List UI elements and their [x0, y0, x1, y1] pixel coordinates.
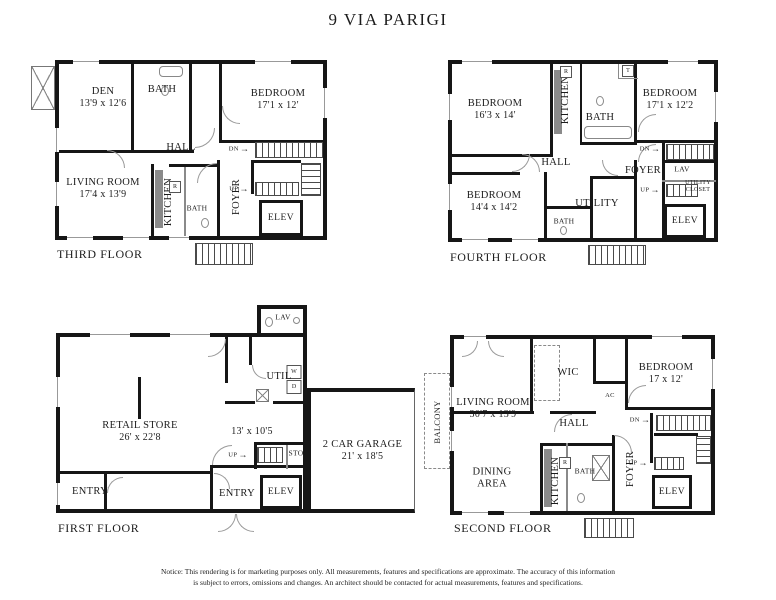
elevator-label: ELEV [268, 213, 294, 223]
stair-return-run [301, 163, 321, 196]
arrow-right-icon: → [651, 145, 660, 154]
room-label-hall: HALL [559, 418, 588, 430]
room-label-sto: STO [289, 450, 304, 459]
elevator: ELEV [259, 200, 303, 236]
arrow-right-icon: → [238, 451, 247, 460]
window [450, 387, 454, 407]
notice-line-1: Notice: This rendering is for marketing … [0, 567, 776, 578]
arrow-right-icon: → [638, 459, 647, 468]
floor-name-fourth: FOURTH FLOOR [450, 250, 547, 265]
notice-text: Notice: This rendering is for marketing … [0, 567, 776, 588]
window [504, 511, 530, 515]
door-arc [462, 341, 478, 357]
wall [634, 64, 637, 142]
wall [219, 64, 222, 142]
wall [618, 78, 638, 79]
room-label-bath-2: BATH [187, 205, 208, 214]
room-label-foyer: FOYER [625, 165, 661, 177]
wall [580, 64, 582, 142]
wall [189, 64, 192, 152]
fourth-floor-plan: ELEV BEDROOM 16'3 x 14' KITCHEN BATH BED… [448, 60, 718, 242]
window [448, 184, 452, 210]
elevator-label: ELEV [672, 216, 698, 226]
window [123, 236, 149, 240]
room-label-bath-2: BATH [554, 218, 575, 227]
room-label-hall: HALL [541, 157, 570, 169]
wall [273, 401, 303, 404]
room-label-living-room: LIVING ROOM 30'7 x 13'9 [456, 397, 530, 421]
up-annotation: UP→ [229, 185, 249, 194]
elevator: ELEV [664, 204, 706, 238]
stair-run-down [656, 415, 711, 431]
room-label-utility-closet: UTILITY CLOSET [681, 180, 715, 194]
wall [184, 164, 186, 236]
arrow-right-icon: → [240, 145, 249, 154]
up-annotation: UP→ [640, 186, 660, 195]
third-floor-plan: ELEV DEN 13'9 x 12'6 BATH BEDROOM 17'1 x… [55, 60, 327, 240]
window [462, 60, 492, 64]
door-arc [218, 514, 236, 532]
entry-stoop [195, 243, 253, 265]
wic-shelving [534, 345, 560, 401]
room-label-garage: 2 CAR GARAGE 21' x 18'5 [323, 438, 402, 462]
kitchen-counter [155, 170, 163, 228]
wall [251, 160, 301, 163]
elevator-label: ELEV [268, 487, 294, 497]
entry-stoop [584, 518, 634, 538]
room-label-bedroom-left: BEDROOM 16'3 x 14' [468, 98, 523, 122]
door-arc [236, 514, 254, 532]
floor-name-second: SECOND FLOOR [454, 521, 552, 536]
room-label-den: DEN 13'9 x 12'6 [80, 86, 127, 110]
toilet-icon [201, 218, 209, 228]
first-floor-plan: ELEV W D RETAIL STORE 26' x 22'8 13' x 1… [56, 333, 307, 513]
wall [550, 411, 596, 414]
door-arc [214, 473, 230, 489]
first-floor-garage: 2 CAR GARAGE 21' x 18'5 [307, 388, 415, 513]
door-arc [195, 128, 215, 148]
room-label-util: UTIL [266, 371, 291, 383]
notice-line-2: is subject to errors, omissions and chan… [0, 578, 776, 589]
door-arc [602, 160, 618, 176]
window [90, 333, 130, 337]
dn-annotation: DN→ [229, 145, 250, 154]
balcony-outline: BALCONY [424, 373, 450, 469]
door-arc [107, 477, 123, 493]
room-label-bath: BATH [586, 112, 615, 124]
door-arc [628, 385, 646, 403]
elevator-label: ELEV [659, 487, 685, 497]
window [652, 335, 682, 339]
toilet-icon [577, 493, 585, 503]
arrow-right-icon: → [641, 416, 650, 425]
wall [618, 64, 619, 78]
wall [550, 64, 553, 156]
entry-stoop [588, 245, 646, 265]
wall [540, 443, 612, 446]
window [255, 60, 291, 64]
retail-display-wall [138, 377, 141, 419]
stair-run-down [666, 144, 714, 160]
door-arc [488, 341, 504, 357]
wall [662, 160, 716, 163]
window [170, 333, 210, 337]
window [169, 236, 189, 240]
wall [452, 172, 520, 175]
stair-run-down [255, 142, 323, 158]
wall [210, 468, 213, 509]
window [462, 511, 488, 515]
window [73, 60, 99, 64]
room-label-entry-left: ENTRY [72, 486, 108, 498]
dn-annotation: DN→ [640, 145, 661, 154]
wall [634, 140, 714, 143]
wall [544, 172, 547, 238]
window [512, 238, 538, 242]
toilet-mark: T [622, 65, 634, 77]
wall [251, 160, 254, 194]
stair-return-run [696, 436, 711, 464]
page-title: 9 VIA PARIGI [0, 10, 776, 30]
wall [452, 154, 553, 157]
wall [580, 142, 637, 145]
room-label-lav: LAV [674, 166, 689, 175]
stair-run-up [255, 182, 299, 196]
window [55, 182, 59, 206]
dn-annotation: DN→ [630, 416, 651, 425]
wall [60, 471, 213, 474]
wall [650, 413, 653, 463]
room-label-13x10: 13' x 10'5 [231, 426, 273, 438]
room-label-balcony: BALCONY [432, 400, 442, 443]
room-label-living-room: LIVING ROOM 17'4 x 13'9 [66, 177, 140, 201]
wall [254, 442, 303, 445]
toilet-icon [265, 317, 273, 327]
tub-icon [159, 66, 183, 77]
room-label-wic: WIC [557, 367, 578, 379]
floorplan-sheet: { "title": "9 VIA PARIGI", "icons": { "a… [0, 0, 776, 600]
wall [530, 339, 533, 411]
wall [225, 337, 228, 383]
window [450, 431, 454, 451]
wall [593, 339, 596, 383]
room-label-foyer: FOYER [625, 451, 637, 487]
door-arc [638, 114, 656, 132]
room-label-kitchen: KITCHEN [560, 76, 572, 124]
window [462, 238, 488, 242]
stair-run-up [654, 457, 684, 470]
fridge-mark: R [560, 66, 572, 78]
wall [593, 381, 628, 384]
room-label-bedroom-bottom: BEDROOM 14'4 x 14'2 [467, 190, 522, 214]
room-label-lav: LAV [275, 314, 290, 323]
window [711, 359, 715, 389]
room-label-entry-center: ENTRY [219, 488, 255, 500]
wall [625, 407, 711, 410]
toilet-icon [596, 96, 604, 106]
x-fixture [256, 389, 269, 402]
sink-icon [293, 317, 300, 324]
wall [566, 443, 568, 511]
floor-name-first: FIRST FLOOR [58, 521, 139, 536]
wall [654, 433, 698, 436]
up-annotation: UP→ [628, 459, 648, 468]
window [714, 92, 718, 122]
bay-window [31, 66, 55, 110]
toilet-icon [560, 226, 567, 235]
room-label-bath: BATH [575, 468, 596, 477]
fridge-mark: R [559, 457, 571, 469]
window [323, 88, 327, 118]
arrow-right-icon: → [650, 186, 659, 195]
window [56, 483, 60, 505]
wall [540, 443, 543, 511]
room-label-bedroom: BEDROOM 17 x 12' [639, 362, 694, 386]
fridge-mark: R [169, 181, 181, 193]
window [464, 335, 486, 339]
wall [217, 160, 220, 236]
stair-run-up [257, 447, 283, 463]
room-label-bath: BATH [148, 84, 177, 96]
floor-name-third: THIRD FLOOR [57, 247, 143, 262]
window [67, 236, 93, 240]
door-arc [252, 365, 266, 379]
wall [225, 401, 255, 404]
wall [131, 64, 134, 152]
room-label-ac: AC [605, 392, 615, 400]
elevator: ELEV [260, 475, 302, 509]
up-annotation: UP→ [228, 451, 248, 460]
wall [249, 337, 252, 365]
window [668, 60, 698, 64]
room-label-utility: UTILITY [575, 198, 619, 210]
window [56, 377, 60, 407]
tub-icon [584, 126, 632, 139]
room-label-bedroom: BEDROOM 17'1 x 12' [251, 88, 306, 112]
room-label-bedroom-right: BEDROOM 17'1 x 12'2 [643, 88, 698, 112]
arrow-right-icon: → [239, 185, 248, 194]
window [448, 94, 452, 120]
second-floor-plan: BALCONY ELEV LIVING ROOM 30'7 x 13'9 WIC… [450, 335, 715, 515]
window [55, 128, 59, 152]
wall [151, 164, 154, 236]
elevator: ELEV [652, 475, 692, 509]
door-arc [208, 339, 226, 357]
room-label-retail: RETAIL STORE 26' x 22'8 [102, 420, 177, 444]
room-label-dining: DINING AREA [466, 467, 518, 492]
door-arc [222, 106, 240, 124]
room-label-hall: HALL [166, 142, 195, 154]
